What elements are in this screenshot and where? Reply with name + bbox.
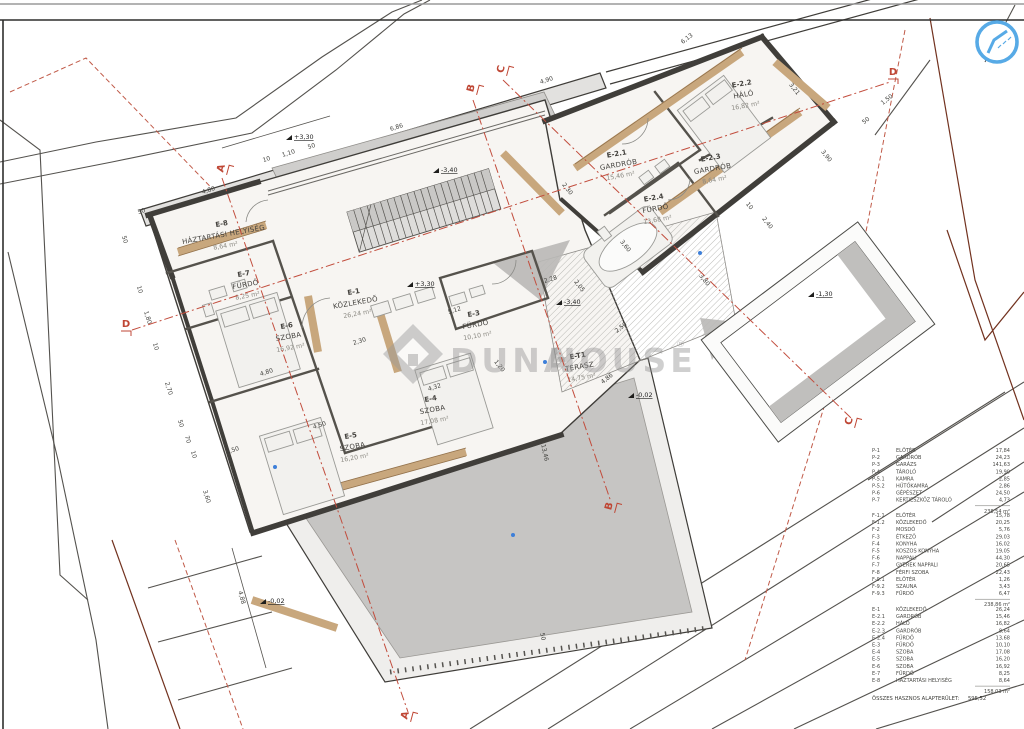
legend-value: 24,23: [996, 455, 1010, 461]
legend-name: ÉTKEZŐ: [896, 532, 916, 540]
legend-code: E-2.4: [872, 635, 885, 641]
section-marker-A: A: [399, 709, 418, 723]
legend-name: SZOBA: [896, 650, 914, 656]
legend-code: F-1.1: [872, 513, 885, 519]
legend-code: P-6: [872, 491, 880, 497]
level-value: -1,30: [816, 290, 833, 298]
level-marker: -0,02: [260, 597, 285, 605]
dimension-label: 4,88: [236, 590, 246, 605]
legend-name: ELŐTÉR: [896, 511, 916, 519]
level-value: -3,40: [441, 166, 458, 174]
legend-code: P-7: [872, 498, 880, 504]
legend-name: ELŐTÉR: [896, 575, 916, 583]
legend-value: 4,73: [999, 498, 1010, 504]
dimension-label: 2,40: [760, 216, 774, 231]
legend-name: HŰTŐKAMRA: [896, 483, 929, 490]
level-value: +3,30: [294, 133, 314, 141]
legend-value: 2,85: [999, 476, 1010, 482]
legend-name: GARÁZS: [896, 461, 917, 468]
legend-value: 17,08: [996, 650, 1010, 656]
legend-code: F-6: [872, 556, 880, 562]
floor-plan-svg: E-8HÁZTARTÁSI HELYISÉG8,64 m²E-7FÜRDŐ8,2…: [0, 0, 1024, 729]
watermark-brand-right: HOUSE: [548, 341, 697, 380]
legend-name: GARDRÓB: [896, 613, 922, 620]
legend-name: FÜRDŐ: [896, 642, 914, 649]
legend-name: GARDRÓB: [896, 454, 922, 461]
legend-code: F-8: [872, 570, 880, 576]
legend-value: 8,25: [999, 671, 1010, 677]
legend-value: 20,25: [996, 520, 1010, 526]
legend-value: 26,24: [996, 607, 1010, 613]
legend-name: KÖZLEKEDŐ: [896, 519, 927, 526]
section-letter: C: [495, 64, 508, 74]
legend-code: F-9.2: [872, 584, 885, 590]
legend-name: FÉRFI SZOBA: [896, 568, 929, 576]
legend-name: SZAUNA: [896, 584, 917, 590]
legend-code: E-2.2: [872, 621, 885, 627]
legend-code: F-4: [872, 541, 880, 547]
compass-icon[interactable]: [977, 22, 1017, 62]
legend-code: P-4: [872, 469, 880, 475]
legend-code: F-3: [872, 534, 880, 540]
legend-total-row: ÖSSZES HASZNOS ALAPTERÜLET: 595,52: [872, 695, 986, 702]
legend-value: 29,03: [996, 534, 1010, 540]
legend-value: 15,46: [996, 614, 1010, 620]
legend-name: FÜRDŐ: [896, 634, 914, 641]
dimension-label: 70: [183, 435, 192, 445]
dimension-label: 6,13: [680, 32, 695, 46]
legend-name: KÖZLEKEDŐ: [896, 606, 927, 613]
section-marker-C: C: [843, 415, 862, 429]
legend-value: 3,43: [999, 584, 1010, 590]
legend-code: P-5.2: [872, 484, 885, 490]
legend-code: F-9.1: [872, 577, 885, 583]
legend-name: ELŐTÉR: [896, 446, 916, 454]
legend-name: FÜRDŐ: [896, 670, 914, 677]
dimension-label: 50: [861, 116, 871, 126]
legend-name: NAPPALI: [896, 556, 917, 562]
legend-name: GÉPÉSZET: [896, 489, 923, 497]
legend-value: 16,20: [996, 657, 1010, 663]
legend-name: GYEREK NAPPALI: [896, 563, 938, 569]
level-value: -0,02: [636, 391, 653, 399]
section-letter: D: [889, 67, 897, 78]
section-marker-B: B: [465, 82, 484, 96]
floor-plan-page: E-8HÁZTARTÁSI HELYISÉG8,64 m²E-7FÜRDŐ8,2…: [0, 0, 1024, 729]
legend-code: E-7: [872, 671, 880, 677]
legend-name: FÜRDŐ: [896, 590, 914, 597]
legend-code: P-3: [872, 462, 880, 468]
watermark-reg: ®: [676, 340, 685, 350]
section-marker-A: A: [215, 162, 234, 176]
legend-name: SZOBA: [896, 664, 914, 670]
legend-value: 8,64: [999, 678, 1010, 684]
legend-value: 6,47: [999, 591, 1010, 597]
level-value: -3,40: [564, 298, 581, 306]
legend-value: 2,86: [999, 484, 1010, 490]
legend-name: SZOBA: [896, 657, 914, 663]
section-letter: D: [122, 319, 130, 330]
legend-name: KONYHA: [896, 541, 917, 547]
level-marker: +3,30: [286, 133, 314, 141]
dimension-label: 1,10: [281, 148, 296, 159]
dimension-label: 4,90: [539, 75, 554, 86]
legend-value: 16,02: [996, 541, 1010, 547]
legend-value: 19,90: [996, 469, 1010, 475]
dimension-label: 10: [189, 450, 198, 460]
dimension-label: 1,80: [142, 310, 153, 325]
legend-code: E-8: [872, 678, 880, 684]
legend-value: 16,92: [996, 664, 1010, 670]
legend-value: 141,63: [993, 462, 1011, 468]
dimension-label: 50: [176, 419, 185, 429]
section-letter: C: [843, 416, 856, 426]
dimension-label: 3,60: [201, 489, 212, 504]
legend-name: KERTIESZKÖZ TÁROLÓ: [896, 497, 952, 504]
legend-name: MOSDÓ: [896, 526, 915, 533]
section-marker-C: C: [495, 63, 514, 77]
dimension-label: 10: [151, 342, 160, 352]
legend-code: E-1: [872, 607, 880, 613]
dimension-label: 6,86: [389, 122, 404, 133]
legend-name: GARDRÓB: [896, 627, 922, 634]
legend-name: TÁROLÓ: [895, 468, 916, 475]
legend-subtotal: 158,03 m²: [984, 689, 1010, 695]
legend-code: E-4: [872, 650, 880, 656]
level-value: -0,02: [268, 597, 285, 605]
legend-value: 10,10: [996, 643, 1010, 649]
legend-total-label: ÖSSZES HASZNOS ALAPTERÜLET:: [872, 695, 959, 702]
legend-code: F-2: [872, 527, 880, 533]
section-letter: A: [399, 710, 412, 721]
legend-code: F-1.2: [872, 520, 885, 526]
legend-name: HÁLÓ: [896, 620, 910, 627]
legend-code: E-2.3: [872, 628, 885, 634]
legend-code: P-2: [872, 455, 880, 461]
legend-code: F-7: [872, 563, 880, 569]
dimension-label: 50: [307, 142, 317, 151]
legend-value: 16,82: [996, 621, 1010, 627]
section-marker-D: D: [121, 319, 131, 336]
legend-value: 19,05: [996, 549, 1010, 555]
legend-value: 15,78: [996, 513, 1010, 519]
legend-code: P-5.1: [872, 476, 885, 482]
legend-code: F-5: [872, 549, 880, 555]
legend-code: E-6: [872, 664, 880, 670]
legend-value: 5,76: [999, 527, 1010, 533]
legend-block-ground: F-1.1ELŐTÉR15,78F-1.2KÖZLEKEDŐ20,25F-2MO…: [872, 511, 1010, 608]
legend-name: HÁZTARTÁSI HELYISÉG: [896, 676, 952, 684]
dimension-label: 10: [262, 155, 272, 164]
pool: [701, 222, 935, 442]
dimension-label: 3,90: [819, 149, 833, 164]
legend-total-value: 595,52: [968, 696, 986, 702]
legend-name: KAMRA: [896, 476, 914, 482]
legend-value: 1,26: [999, 577, 1010, 583]
legend-value: 17,84: [996, 448, 1010, 454]
dimension-label: 10: [744, 201, 754, 211]
legend-code: E-2.1: [872, 614, 885, 620]
legend-name: KOSZOS KONYHA: [896, 549, 940, 555]
legend-code: E-3: [872, 643, 880, 649]
legend-code: F-9.3: [872, 591, 885, 597]
legend-value: 22,43: [996, 570, 1010, 576]
level-value: +3,30: [415, 280, 435, 288]
section-marker-D: D: [888, 67, 898, 84]
section-letter: A: [215, 163, 228, 174]
dimension-label: 10: [135, 285, 144, 295]
legend-code: E-5: [872, 657, 880, 663]
legend-value: 24,50: [996, 491, 1010, 497]
section-letter: B: [465, 83, 478, 93]
dimension-label: 50: [120, 235, 129, 245]
legend-value: 13,68: [996, 635, 1010, 641]
legend-code: P-1: [872, 448, 880, 454]
dimension-label: 2,70: [163, 381, 174, 396]
legend-value: 44,30: [996, 556, 1010, 562]
legend-value: 20,65: [996, 563, 1010, 569]
legend-value: 8,64: [999, 628, 1010, 634]
